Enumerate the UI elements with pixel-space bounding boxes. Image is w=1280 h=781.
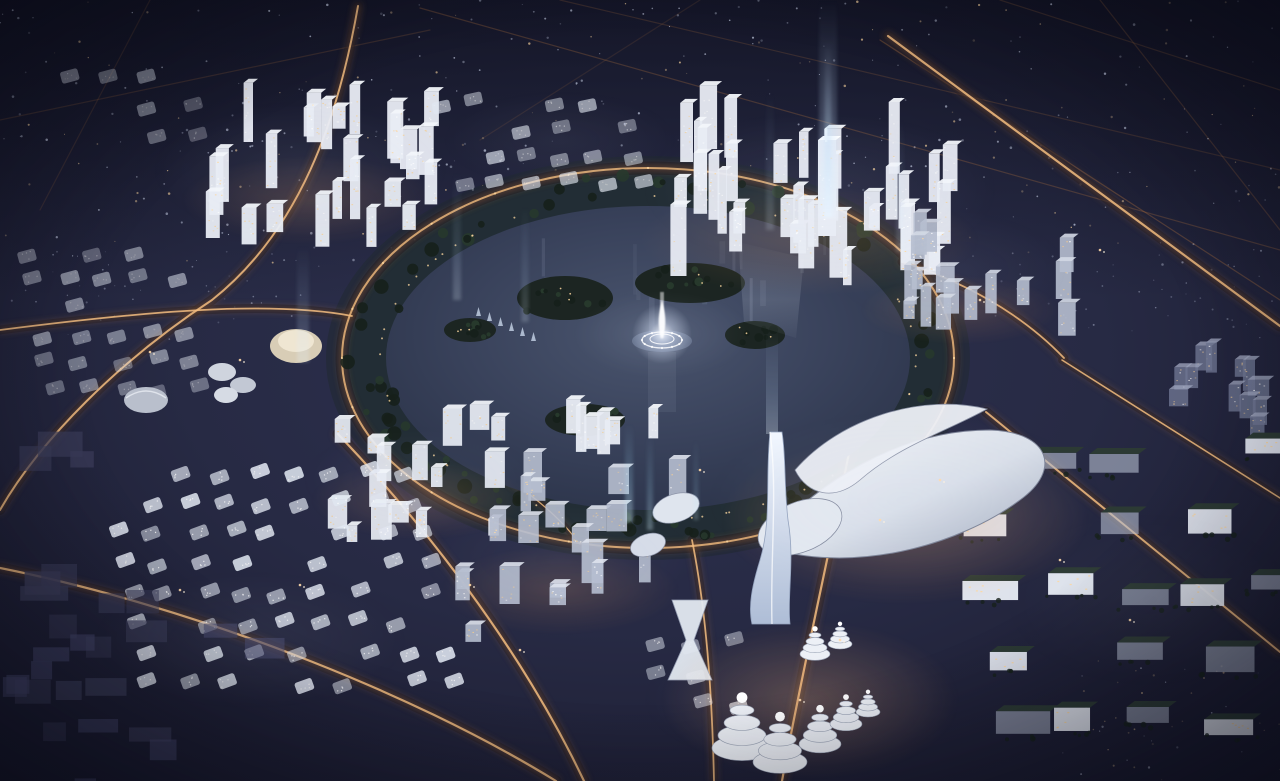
city-night-aerial-rendering (0, 0, 1280, 781)
vignette (0, 0, 1280, 781)
